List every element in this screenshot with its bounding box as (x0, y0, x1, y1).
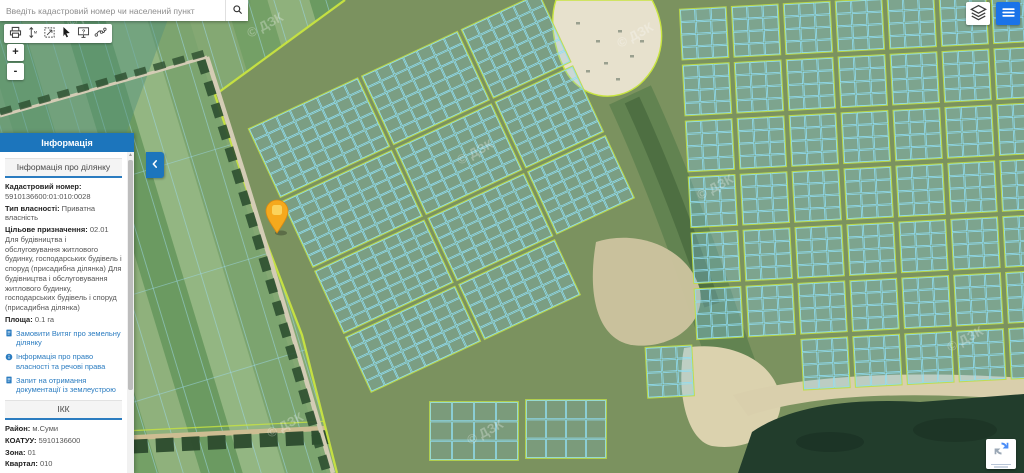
cadastral-map-app: © ДЗК© ДЗК© ДЗК© ДЗК© ДЗК© ДЗК© ДЗК© ДЗК… (0, 0, 1024, 473)
zoom-controls: + - (7, 44, 24, 82)
field-row: Квартал: 010 (5, 459, 122, 469)
measure-length-button[interactable]: м (25, 26, 40, 41)
recaptcha-text-line (994, 466, 1008, 468)
field-row: Цільове призначення: 02.01 Для будівницт… (5, 225, 122, 313)
panel-scrollbar[interactable]: ▲ (127, 152, 134, 473)
field-row: Тип власності: Приватна власність (5, 204, 122, 224)
search-icon (232, 3, 243, 18)
svg-text:м: м (34, 30, 37, 35)
info-panel: Інформація Інформація про ділянку Кадаст… (0, 133, 134, 473)
map-toolbar: м? (4, 24, 112, 43)
measure-area-icon (43, 26, 56, 42)
chevron-left-icon (149, 158, 161, 173)
measure-area-button[interactable] (42, 26, 57, 41)
info-icon (5, 353, 13, 361)
parcel-action-link[interactable]: Інформація про право власності та речові… (5, 352, 122, 372)
link-label: Запит на отримання документації із земле… (16, 376, 122, 396)
layers-button[interactable] (966, 2, 990, 25)
recaptcha-badge[interactable] (986, 439, 1016, 469)
field-row: КОАТУУ: 5910136600 (5, 436, 122, 446)
document-icon (5, 376, 13, 384)
search-button[interactable] (225, 0, 248, 21)
menu-button[interactable] (996, 2, 1020, 25)
zoom-out-button[interactable]: - (7, 63, 24, 80)
link-label: Інформація про право власності та речові… (16, 352, 122, 372)
parcel-action-link[interactable]: Запит на отримання документації із земле… (5, 376, 122, 396)
field-row: Площа: 0.1 га (5, 315, 122, 325)
field-row: Зона: 01 (5, 448, 122, 458)
parcel-section-title: Інформація про ділянку (5, 158, 122, 178)
recaptcha-text-line (991, 464, 1011, 466)
scrollbar-thumb[interactable] (128, 160, 133, 390)
document-icon (5, 329, 13, 337)
ikk-section-title: ІКК (5, 400, 122, 420)
menu-icon (1000, 4, 1017, 24)
measure-route-icon (94, 26, 107, 42)
satellite-map[interactable]: © ДЗК© ДЗК© ДЗК© ДЗК© ДЗК© ДЗК© ДЗК© ДЗК (0, 0, 1024, 473)
field-row: Район: м.Суми (5, 424, 122, 434)
info-panel-title: Інформація (0, 133, 134, 152)
panel-collapse-button[interactable] (146, 152, 164, 178)
identify-button[interactable]: ? (76, 26, 91, 41)
select-cursor-button[interactable] (59, 26, 74, 41)
parcel-action-link[interactable]: Замовити Витяг про земельну ділянку (5, 329, 122, 349)
measure-length-icon: м (26, 26, 39, 42)
layers-icon (969, 3, 988, 25)
measure-route-button[interactable] (93, 26, 108, 41)
scrollbar-up-arrow[interactable]: ▲ (127, 152, 134, 159)
info-panel-body: Інформація про ділянку Кадастровий номер… (0, 152, 134, 473)
print-button[interactable] (8, 26, 23, 41)
search-input[interactable] (0, 0, 225, 21)
search-bar (0, 0, 248, 21)
print-icon (9, 26, 22, 42)
select-cursor-icon (60, 26, 73, 42)
recaptcha-icon (993, 440, 1010, 462)
link-label: Замовити Витяг про земельну ділянку (16, 329, 122, 349)
svg-text:?: ? (82, 29, 86, 35)
field-row: Кадастровий номер:5910136600:01:010:0028 (5, 182, 122, 202)
identify-icon: ? (77, 26, 90, 42)
zoom-in-button[interactable]: + (7, 44, 24, 61)
